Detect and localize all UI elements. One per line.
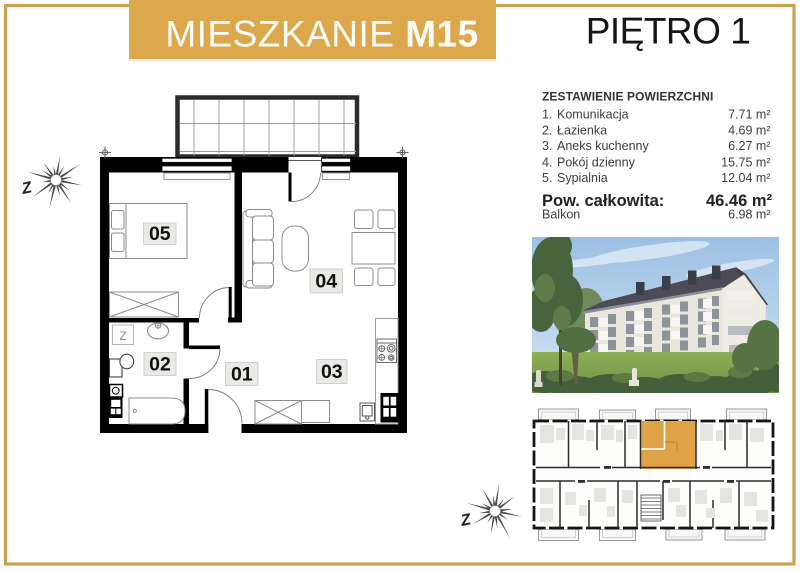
svg-text:5.: 5. bbox=[542, 171, 552, 185]
svg-text:04: 04 bbox=[315, 271, 337, 293]
svg-text:1.: 1. bbox=[542, 108, 552, 122]
svg-text:Z: Z bbox=[458, 511, 473, 530]
svg-text:2.: 2. bbox=[542, 123, 552, 137]
svg-text:MIESZKANIE M15: MIESZKANIE M15 bbox=[165, 14, 478, 55]
svg-text:4.: 4. bbox=[542, 155, 552, 169]
svg-text:Aneks kuchenny: Aneks kuchenny bbox=[557, 139, 649, 153]
svg-text:12.04 m²: 12.04 m² bbox=[721, 171, 770, 185]
svg-text:05: 05 bbox=[149, 223, 171, 245]
svg-text:4.69 m²: 4.69 m² bbox=[728, 123, 770, 137]
svg-text:3.: 3. bbox=[542, 139, 552, 153]
svg-text:Balkon: Balkon bbox=[542, 207, 580, 221]
svg-text:ZESTAWIENIE POWIERZCHNI: ZESTAWIENIE POWIERZCHNI bbox=[542, 90, 713, 104]
svg-text:02: 02 bbox=[149, 354, 171, 376]
svg-text:Pokój dzienny: Pokój dzienny bbox=[557, 155, 636, 169]
svg-text:Łazienka: Łazienka bbox=[557, 123, 607, 137]
svg-text:01: 01 bbox=[231, 364, 253, 386]
svg-text:03: 03 bbox=[321, 361, 343, 383]
svg-text:Z: Z bbox=[119, 329, 126, 343]
svg-text:PIĘTRO 1: PIĘTRO 1 bbox=[586, 11, 751, 52]
svg-text:Sypialnia: Sypialnia bbox=[557, 171, 608, 185]
svg-text:Komunikacja: Komunikacja bbox=[557, 108, 629, 122]
svg-text:6.27 m²: 6.27 m² bbox=[728, 139, 770, 153]
svg-text:6.98 m²: 6.98 m² bbox=[728, 207, 770, 221]
svg-text:Z: Z bbox=[19, 179, 34, 198]
svg-text:15.75 m²: 15.75 m² bbox=[721, 155, 770, 169]
svg-text:7.71 m²: 7.71 m² bbox=[728, 108, 770, 122]
